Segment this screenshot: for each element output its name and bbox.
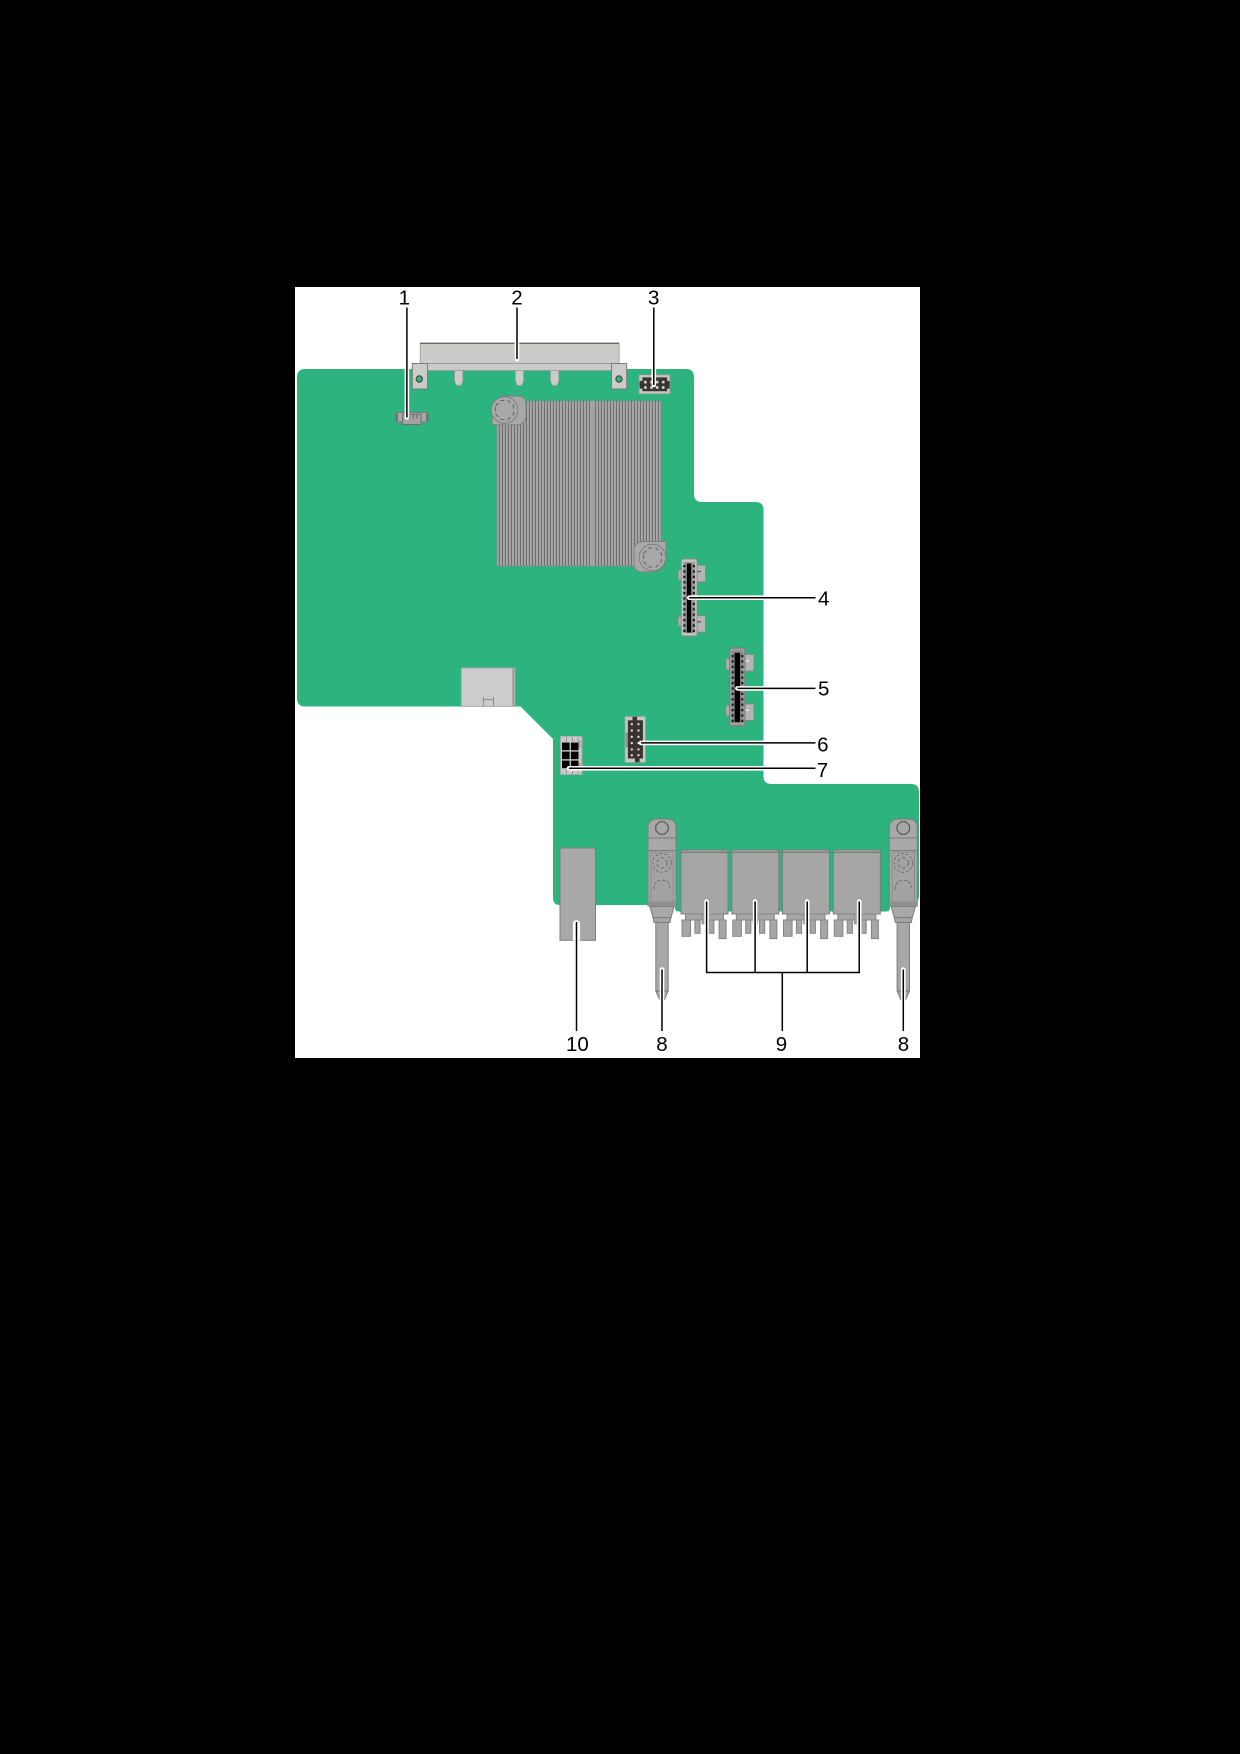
svg-text:8: 8 (656, 1033, 667, 1056)
svg-text:8: 8 (898, 1033, 909, 1056)
svg-text:9: 9 (776, 1033, 787, 1056)
svg-text:1: 1 (399, 287, 410, 310)
svg-text:3: 3 (648, 287, 659, 310)
svg-text:2: 2 (511, 287, 522, 310)
svg-text:4: 4 (818, 588, 829, 611)
svg-text:5: 5 (818, 678, 829, 701)
svg-text:6: 6 (817, 733, 828, 756)
svg-text:10: 10 (566, 1033, 589, 1056)
svg-text:7: 7 (817, 759, 828, 782)
